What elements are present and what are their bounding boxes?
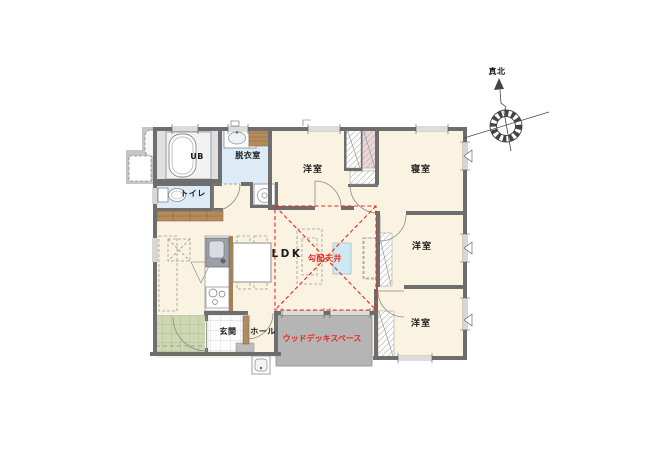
- kitchen-counter-icon: [205, 236, 233, 311]
- room-label-western-bottom: 洋室: [411, 317, 431, 329]
- annotation-wood-deck: ウッドデッキスペース: [283, 333, 362, 343]
- room-label-toilet: トイレ: [180, 189, 206, 198]
- room-label-bedroom: 寝室: [411, 163, 431, 175]
- room-label-entrance: 玄関: [220, 326, 237, 336]
- outdoor-sink-icon: [252, 356, 270, 374]
- room-label-ldk: LDK: [271, 248, 302, 260]
- room-label-western-middle: 洋室: [412, 240, 432, 252]
- floor-plan-drawing: UB 脱衣室 洋室 寝室 トイレ LDK 勾配天井 洋室 洋室 玄関 ホール ウ…: [0, 0, 645, 468]
- floor-plan-canvas: UB 脱衣室 洋室 寝室 トイレ LDK 勾配天井 洋室 洋室 玄関 ホール ウ…: [0, 0, 645, 468]
- bathtub-icon: [166, 132, 211, 179]
- compass-icon: [464, 78, 549, 151]
- compass-true-north-label: 真北: [489, 66, 506, 76]
- room-label-western-top: 洋室: [303, 163, 323, 175]
- room-label-hall: ホール: [250, 327, 276, 336]
- room-label-dressing: 脱衣室: [235, 150, 261, 160]
- room-label-ub: UB: [190, 152, 204, 161]
- porch-tile-floor: [156, 315, 205, 352]
- annotation-sloped-ceiling: 勾配天井: [308, 253, 342, 263]
- entrance-step: [236, 343, 254, 352]
- dining-table-icon: [233, 243, 271, 282]
